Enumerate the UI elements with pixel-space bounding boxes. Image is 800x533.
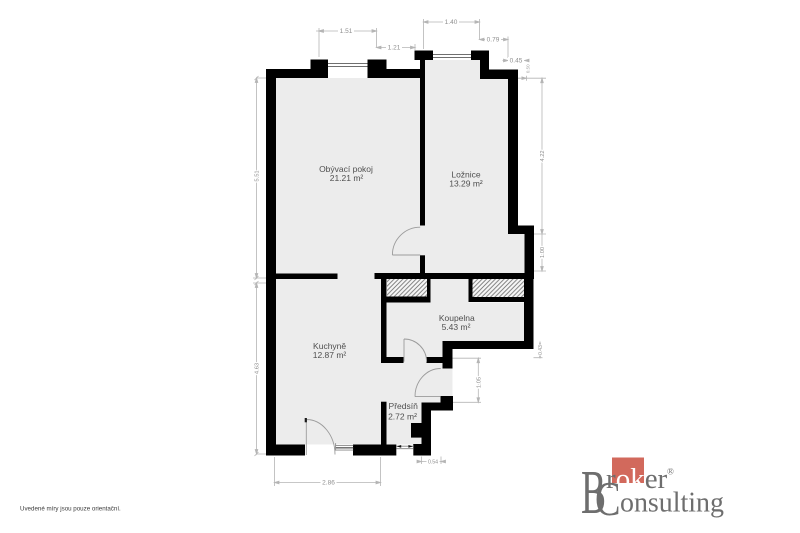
svg-text:5.43 m²: 5.43 m²	[442, 322, 471, 332]
svg-text:Uvedené míry jsou pouze orient: Uvedené míry jsou pouze orientační.	[20, 506, 121, 513]
svg-text:13.29 m²: 13.29 m²	[449, 179, 483, 189]
svg-text:Předsíň: Předsíň	[389, 401, 419, 411]
svg-text:1.51: 1.51	[340, 28, 353, 35]
svg-text:0.50: 0.50	[526, 64, 531, 73]
svg-text:1.21: 1.21	[388, 45, 401, 52]
svg-text:2.86: 2.86	[322, 480, 335, 487]
svg-text:onsulting: onsulting	[620, 487, 724, 519]
svg-text:0.79: 0.79	[487, 37, 500, 44]
svg-text:0.54: 0.54	[428, 460, 438, 466]
svg-text:0.43: 0.43	[538, 345, 544, 355]
svg-text:1.00: 1.00	[540, 247, 546, 258]
svg-text:5.51: 5.51	[255, 170, 261, 181]
svg-text:4.22: 4.22	[540, 150, 546, 161]
svg-text:1.05: 1.05	[476, 377, 482, 388]
svg-text:0.45: 0.45	[510, 58, 523, 65]
svg-text:®: ®	[667, 467, 674, 477]
svg-text:12.87 m²: 12.87 m²	[313, 350, 347, 360]
svg-text:2.72 m²: 2.72 m²	[388, 411, 417, 421]
svg-text:C: C	[595, 472, 621, 526]
svg-text:4.63: 4.63	[255, 363, 261, 374]
svg-text:1.40: 1.40	[445, 19, 458, 26]
svg-text:21.21 m²: 21.21 m²	[330, 173, 364, 183]
